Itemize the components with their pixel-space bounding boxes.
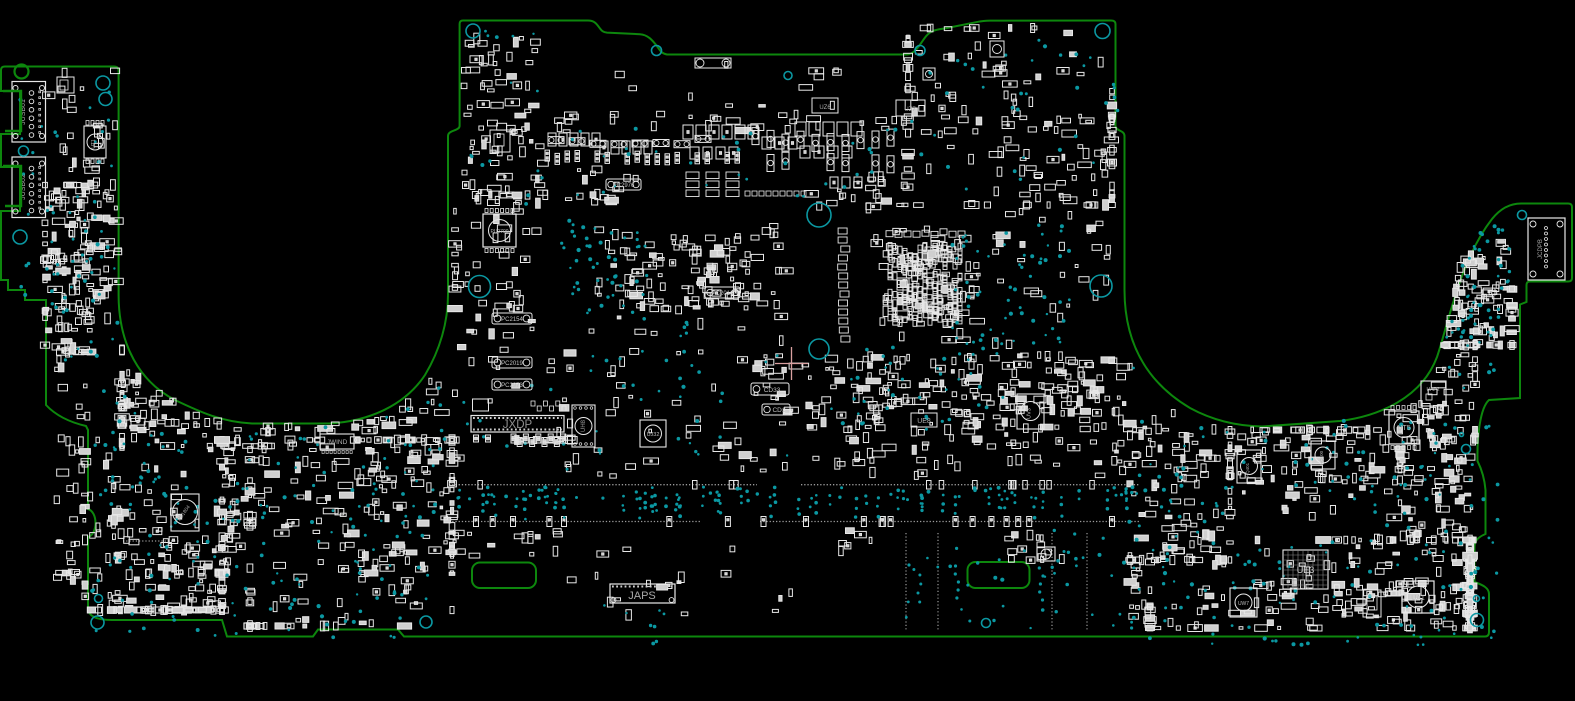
svg-text:PC2973: PC2973 [501,383,523,389]
svg-text:UT5: UT5 [1397,425,1410,432]
svg-text:UH8: UH8 [581,419,587,432]
svg-text:HQ400: HQ400 [1319,450,1324,465]
svg-text:CD1: CD1 [772,407,785,414]
svg-text:UA1: UA1 [1411,595,1425,602]
svg-text:JWIND: JWIND [327,439,348,446]
svg-text:JXDP: JXDP [503,419,533,431]
svg-text:PC2014: PC2014 [712,291,734,297]
svg-text:UE8: UE8 [917,418,931,425]
svg-text:CD33: CD33 [764,387,781,394]
svg-text:PU2700: PU2700 [490,229,508,235]
svg-text:UJ32: UJ32 [647,432,660,438]
svg-text:UE3: UE3 [1297,565,1315,575]
svg-text:UW7: UW7 [1238,601,1249,607]
svg-text:UAP2: UAP2 [1426,387,1439,393]
svg-text:PC2019: PC2019 [501,361,523,367]
svg-text:PC2976: PC2976 [613,183,635,189]
svg-text:UV3: UV3 [1027,408,1033,419]
svg-text:UZ6: UZ6 [819,105,831,111]
svg-text:JCDPB: JCDPB [1538,239,1544,259]
svg-text:HQ401: HQ401 [1245,462,1250,477]
svg-text:UZ7: UZ7 [904,107,916,113]
svg-text:JAPS: JAPS [628,590,656,602]
svg-text:PC2154: PC2154 [501,317,523,323]
svg-text:UT1: UT1 [91,139,97,149]
